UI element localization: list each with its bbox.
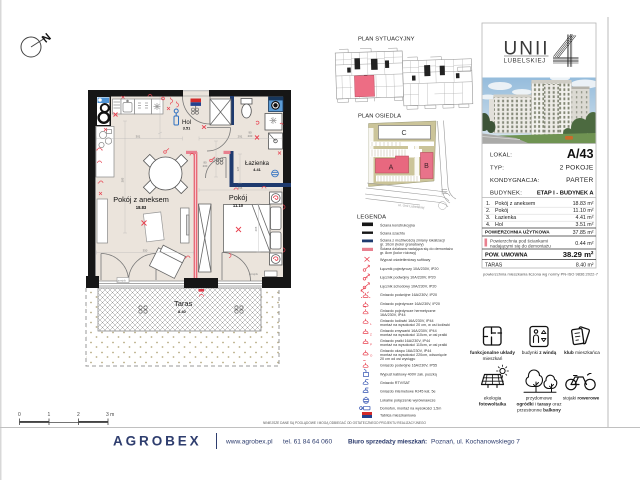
svg-text:18.83 m²: 18.83 m² (573, 201, 594, 207)
svg-text:Łącznik pojedynczy 10A/230V, I: Łącznik pojedynczy 10A/230V, IP20 (380, 267, 439, 271)
svg-text:O: O (370, 354, 373, 358)
svg-text:0: 0 (18, 412, 21, 418)
svg-text:budynki z windą: budynki z windą (522, 350, 557, 355)
svg-text:Gniazdo pojedyncze 16A/230V, I: Gniazdo pojedyncze 16A/230V, IP20 (380, 302, 440, 306)
svg-text:NINIEJSZE DANE SĄ POGLĄDOWE I: NINIEJSZE DANE SĄ POGLĄDOWE I MOGĄ ODBIE… (263, 420, 427, 425)
svg-text:fotowoltaika: fotowoltaika (479, 402, 507, 407)
svg-text:200: 200 (203, 164, 208, 168)
svg-text:301: 301 (136, 134, 141, 138)
svg-text:Gniazdo internetowe RJ45 kat.: Gniazdo internetowe RJ45 kat. 5e (380, 389, 436, 393)
svg-text:gr. 8cm (kolor różowy): gr. 8cm (kolor różowy) (380, 251, 416, 255)
svg-text:montaż na wysokości 110cm, w o: montaż na wysokości 110cm, w osi pralki (380, 343, 447, 347)
svg-text:127: 127 (236, 166, 240, 171)
svg-text:1: 1 (48, 412, 51, 418)
svg-text:2.: 2. (486, 208, 490, 214)
svg-text:TYP:: TYP: (490, 166, 504, 172)
svg-text:ekologia: ekologia (484, 396, 502, 401)
svg-text:205: 205 (254, 226, 258, 231)
svg-text:przestronne balkony: przestronne balkony (517, 408, 561, 413)
svg-text:montaż na wysokości 110cm, w o: montaż na wysokości 110cm, w osi pralki (380, 333, 447, 337)
svg-text:funkcjonalne układy: funkcjonalne układy (470, 350, 515, 355)
svg-text:16A/230V, IP44: 16A/230V, IP44 (380, 313, 406, 317)
svg-text:20 cm od osi wyciągu: 20 cm od osi wyciągu (380, 357, 415, 361)
svg-text:Pokój: Pokój (495, 208, 508, 214)
svg-text:Hol: Hol (182, 120, 191, 126)
svg-text:PLAN SYTUACYJNY: PLAN SYTUACYJNY (358, 37, 415, 43)
svg-text:POW. UMOWNA: POW. UMOWNA (485, 253, 528, 259)
svg-text:Taras: Taras (174, 299, 193, 308)
svg-text:montaż na wysokości 20 cm, w o: montaż na wysokości 20 cm, w osi lodówki (380, 323, 450, 327)
svg-text:37.85 m²: 37.85 m² (573, 230, 594, 236)
svg-text:Ściana szachtu: Ściana szachtu (380, 231, 405, 236)
svg-text:A/43: A/43 (567, 147, 594, 161)
svg-text:Pokój: Pokój (229, 193, 248, 202)
svg-text:LEGENDA: LEGENDA (357, 215, 386, 221)
svg-text:4.41: 4.41 (253, 168, 260, 172)
svg-text:385: 385 (121, 177, 125, 182)
svg-text:Pokój z aneksem: Pokój z aneksem (113, 195, 169, 204)
svg-text:4.: 4. (486, 222, 490, 228)
svg-text:tel. 61 84 64 060: tel. 61 84 64 060 (283, 439, 332, 446)
svg-text:Ściana konstrukcyjna: Ściana konstrukcyjna (380, 222, 416, 227)
svg-text:LUBELSKIEJ: LUBELSKIEJ (504, 58, 546, 65)
svg-text:3.: 3. (486, 215, 490, 221)
svg-text:PLAN OSIEDLA: PLAN OSIEDLA (358, 114, 401, 120)
svg-text:grzejnik: grzejnik (117, 279, 127, 283)
svg-text:C: C (401, 130, 406, 137)
svg-text:KONDYGNACJA:: KONDYGNACJA: (490, 178, 540, 184)
svg-text:3.51: 3.51 (183, 127, 190, 131)
svg-text:AGROBEX: AGROBEX (113, 434, 202, 449)
svg-text:Gniazdo podwójne 16A/230V, IP5: Gniazdo podwójne 16A/230V, IP55 (380, 363, 437, 367)
svg-text:www.agrobex.pl: www.agrobex.pl (225, 439, 273, 446)
svg-text:TARAS: TARAS (485, 263, 503, 269)
svg-text:4.41 m²: 4.41 m² (576, 215, 594, 221)
svg-text:BUDYNEK:: BUDYNEK: (490, 191, 522, 197)
svg-text:Poznań, ul. Kochanowskiego 7: Poznań, ul. Kochanowskiego 7 (431, 439, 520, 446)
svg-text:Gniazdo podwójne 16A/230V, IP2: Gniazdo podwójne 16A/230V, IP20 (380, 293, 437, 297)
svg-text:Z: Z (370, 332, 372, 336)
svg-text:2 POKOJE: 2 POKOJE (560, 165, 594, 172)
svg-text:200: 200 (248, 134, 253, 138)
svg-text:LOKAL:: LOKAL: (490, 153, 512, 159)
svg-text:18.83: 18.83 (136, 205, 147, 210)
svg-text:grzejnik: grzejnik (249, 272, 259, 276)
svg-text:mieszkań: mieszkań (483, 356, 503, 361)
svg-text:L: L (370, 322, 372, 326)
svg-text:Wypust oświetleniowy sufitowy: Wypust oświetleniowy sufitowy (380, 258, 431, 262)
svg-text:291: 291 (238, 134, 243, 138)
svg-text:ETAP I - BUDYNEK A: ETAP I - BUDYNEK A (537, 191, 595, 197)
svg-text:3.51 m²: 3.51 m² (576, 222, 594, 228)
svg-text:Łącznik podwójny 10A/230V, IP2: Łącznik podwójny 10A/230V, IP20 (380, 276, 436, 280)
svg-text:Hol: Hol (495, 222, 503, 228)
svg-text:8.40: 8.40 (178, 309, 187, 314)
svg-text:11.10 m²: 11.10 m² (573, 208, 594, 214)
svg-text:2: 2 (77, 412, 80, 418)
svg-text:A: A (389, 165, 394, 172)
svg-text:powierzchnia mieszkania liczon: powierzchnia mieszkania liczona wg normy… (483, 272, 599, 277)
svg-text:Pokój z aneksem: Pokój z aneksem (495, 201, 536, 207)
svg-text:3 m: 3 m (106, 412, 114, 418)
svg-text:8.40 m²: 8.40 m² (576, 263, 594, 269)
svg-text:Gniazdo RTV/SAT: Gniazdo RTV/SAT (380, 381, 411, 385)
svg-text:Łazienka: Łazienka (245, 161, 270, 167)
svg-text:POWIERZCHNIA UŻYTKOWA: POWIERZCHNIA UŻYTKOWA (485, 229, 550, 235)
svg-text:nadającymi się do demontażu: nadającymi się do demontażu (490, 244, 551, 249)
svg-text:296: 296 (238, 186, 243, 190)
svg-text:Biuro sprzedaży mieszkań:: Biuro sprzedaży mieszkań: (348, 439, 427, 446)
svg-text:klub mieszkańca: klub mieszkańca (564, 350, 600, 355)
svg-text:38.29 m²: 38.29 m² (563, 250, 594, 259)
svg-text:1.: 1. (486, 201, 490, 207)
svg-text:Wypust kablowy 400V zak. puszk: Wypust kablowy 400V zak. puszką (380, 372, 438, 376)
svg-text:PARTER: PARTER (566, 177, 593, 184)
svg-text:Domofon, montaż na wysokości 1: Domofon, montaż na wysokości 1,5m (380, 407, 441, 411)
svg-text:UNII: UNII (504, 39, 550, 60)
svg-text:B: B (424, 163, 429, 170)
svg-text:11.10: 11.10 (233, 203, 244, 208)
svg-text:Łazienka: Łazienka (495, 215, 516, 221)
svg-text:Łącznik schodowy 10A/230V, IP2: Łącznik schodowy 10A/230V, IP20 (380, 284, 436, 288)
svg-text:Lokalne połączenie wyrównawcze: Lokalne połączenie wyrównawcze (380, 398, 436, 402)
svg-text:350: 350 (143, 248, 148, 252)
svg-text:P: P (370, 342, 372, 346)
svg-text:N: N (40, 31, 54, 45)
svg-text:0.44 m²: 0.44 m² (575, 241, 593, 247)
svg-text:ogródki i tarasy oraz: ogródki i tarasy oraz (516, 402, 562, 407)
svg-text:stojaki rowerowe: stojaki rowerowe (563, 396, 600, 401)
svg-text:ul. Unii Lubelskiej: ul. Unii Lubelskiej (398, 203, 425, 210)
svg-text:Tablica mieszkaniowa: Tablica mieszkaniowa (380, 413, 417, 417)
svg-text:przydomowe: przydomowe (526, 396, 553, 401)
